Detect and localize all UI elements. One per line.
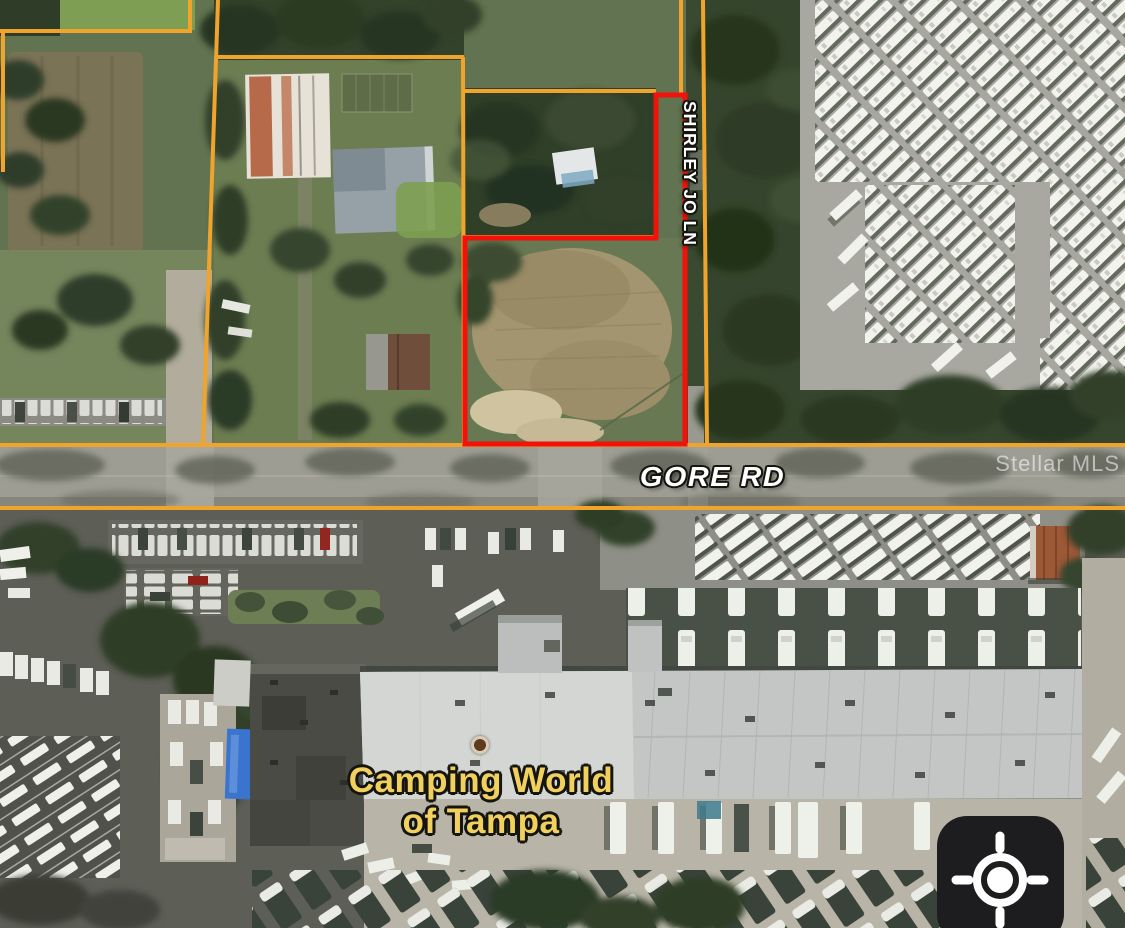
business-label-line2: of Tampa [331,802,631,843]
parcel-lines-orange [0,0,1125,508]
gps-crosshair-icon [950,830,1050,928]
poi-dot [471,736,489,754]
satellite-map-view[interactable]: SHIRLEY JO LN GORE RD Camping World of T… [0,0,1125,928]
locate-button[interactable] [937,816,1064,928]
street-label-shirley-jo-ln: SHIRLEY JO LN [679,101,700,246]
watermark-stellar-mls: Stellar MLS [995,451,1120,477]
business-label-camping-world: Camping World of Tampa [331,761,631,843]
street-label-gore-rd: GORE RD [640,461,785,493]
business-label-line1: Camping World [331,761,631,802]
subject-parcel-outline [465,95,685,444]
